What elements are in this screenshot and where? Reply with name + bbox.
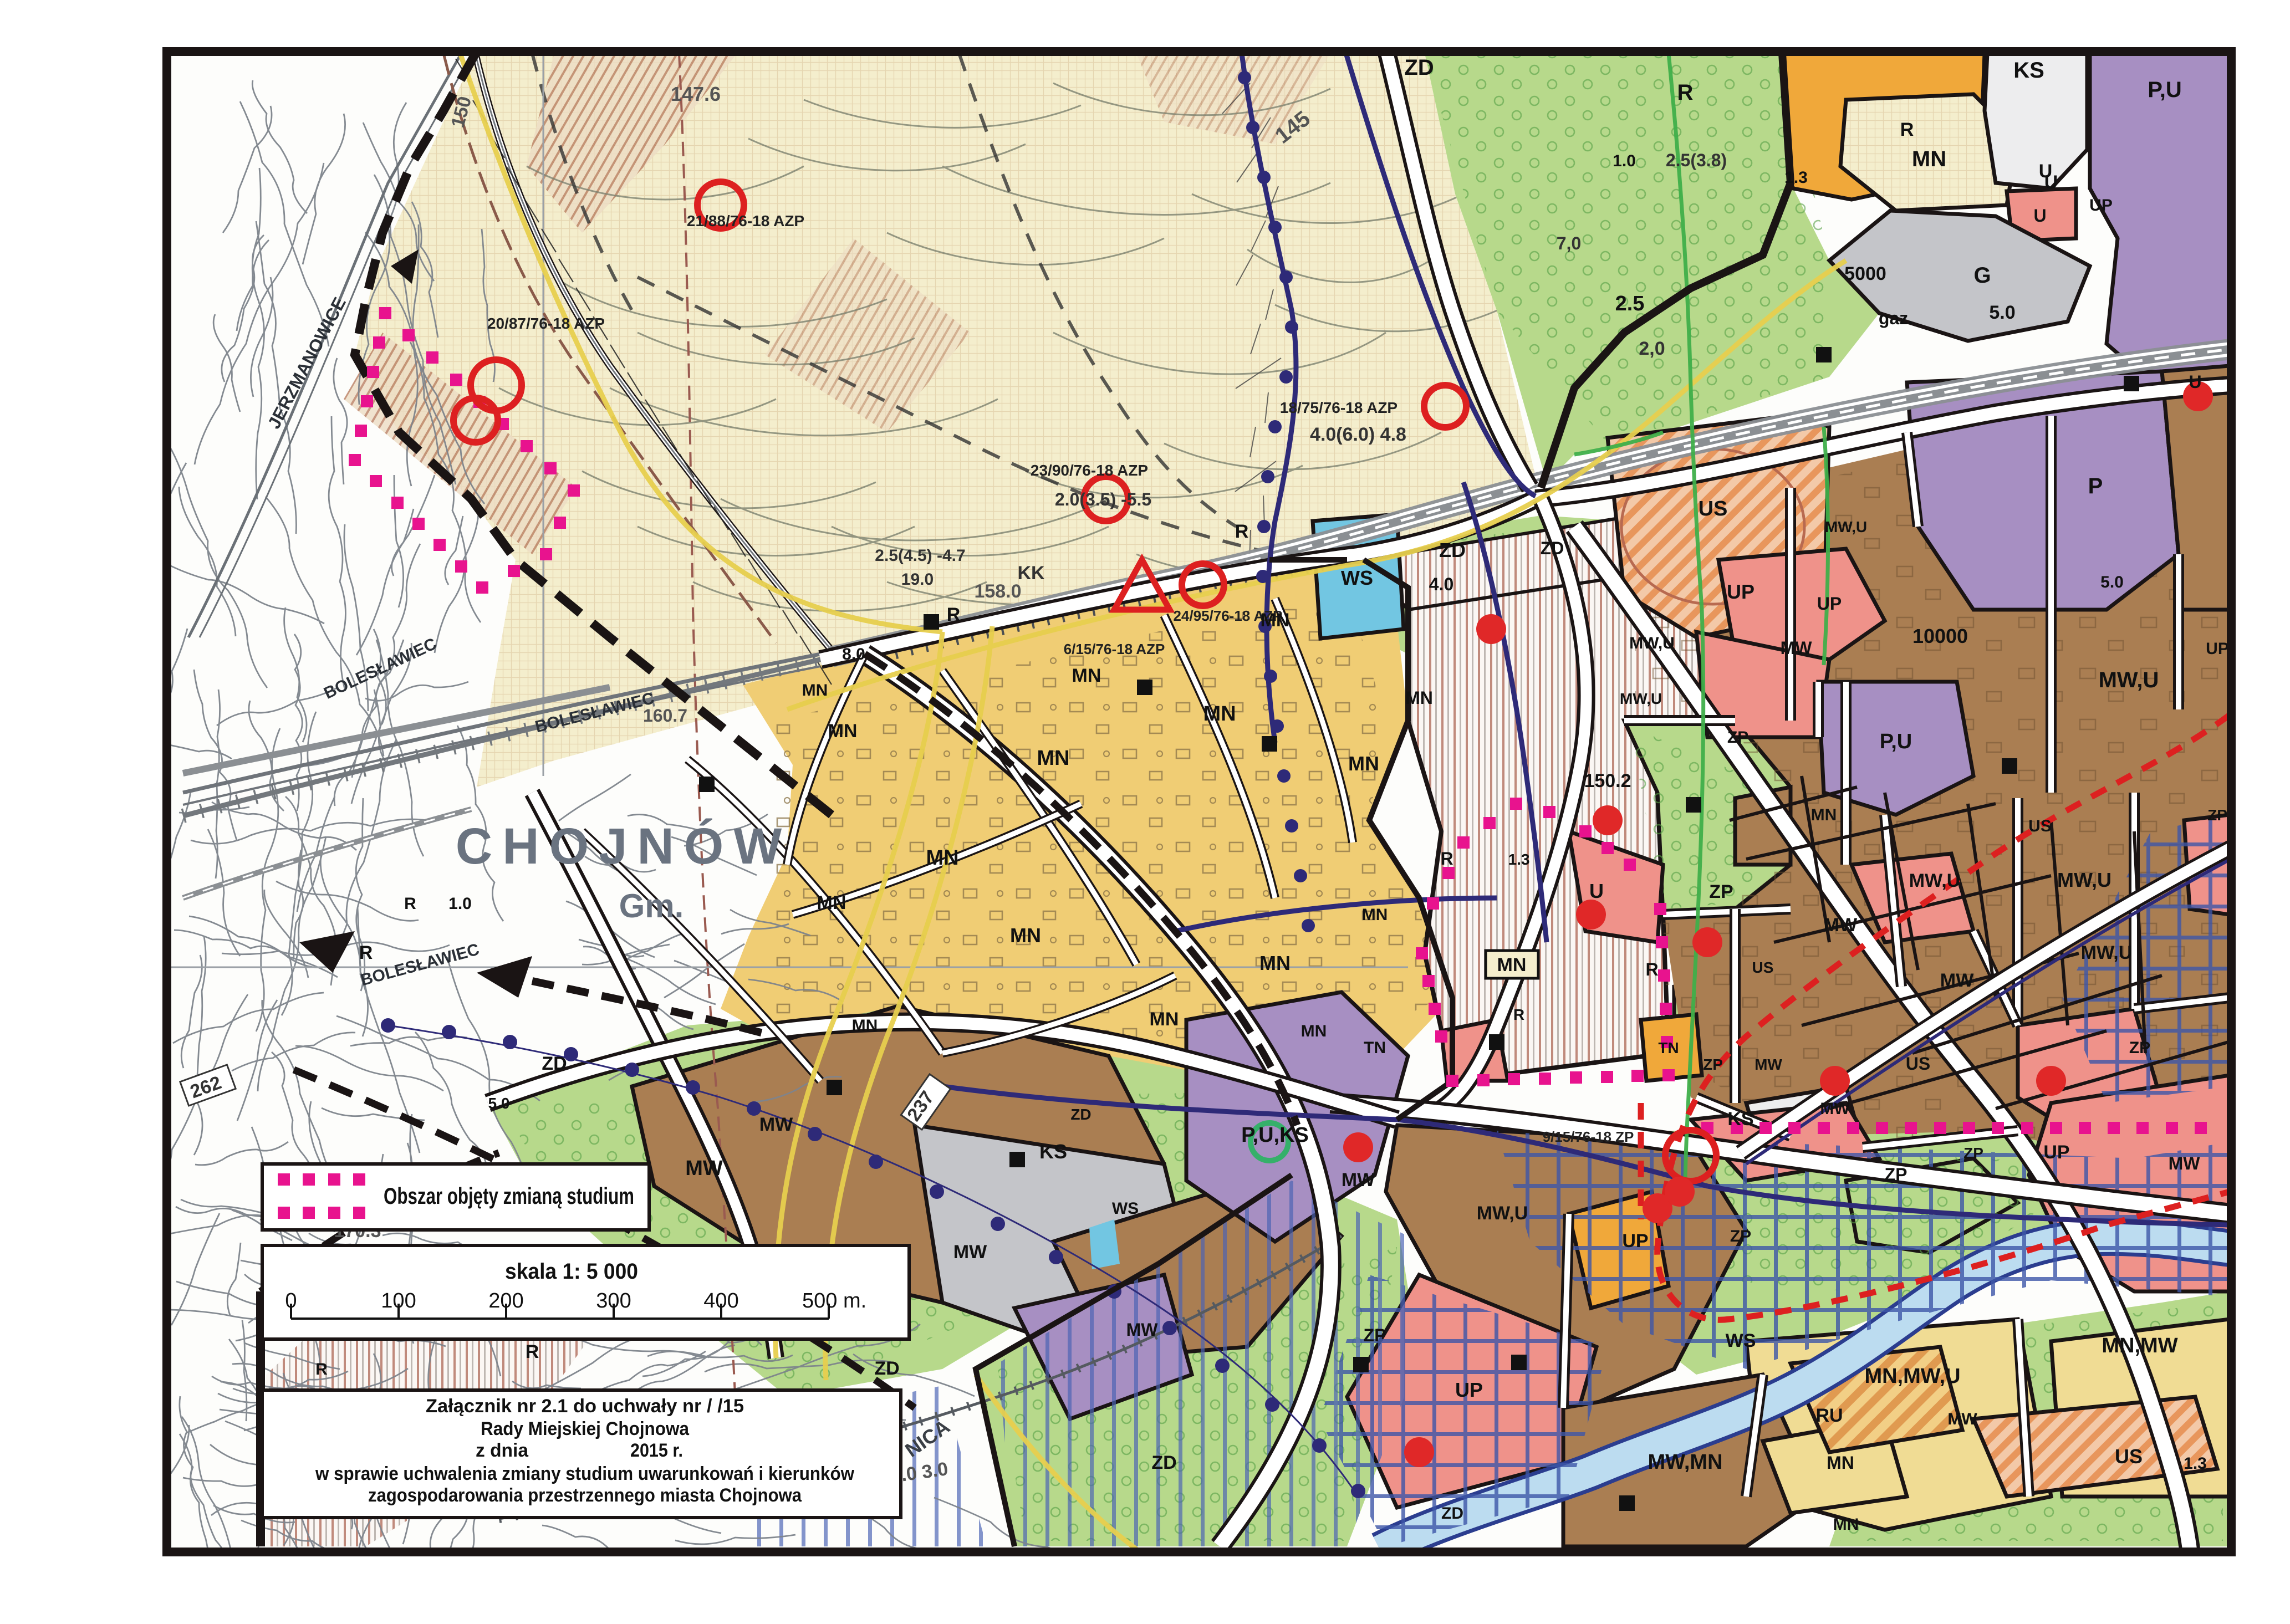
svg-text:500 m.: 500 m. (802, 1289, 866, 1313)
svg-text:R: R (404, 895, 416, 913)
svg-text:MN,MW: MN,MW (2102, 1334, 2177, 1357)
svg-text:4.0(6.0) 4.8: 4.0(6.0) 4.8 (1310, 424, 1406, 445)
svg-text:MN: MN (1827, 1453, 1854, 1473)
svg-text:R: R (1513, 1006, 1524, 1023)
svg-text:MN: MN (828, 721, 858, 742)
svg-text:MN: MN (1811, 806, 1837, 824)
svg-text:400: 400 (703, 1289, 738, 1313)
svg-text:MW: MW (1947, 1410, 1977, 1428)
svg-text:8.0: 8.0 (842, 645, 865, 663)
svg-text:MW,MN: MW,MN (1648, 1451, 1722, 1474)
svg-text:MW: MW (1781, 638, 1813, 658)
svg-text:MW,U: MW,U (1477, 1203, 1528, 1224)
svg-text:P,U,KS: P,U,KS (1241, 1123, 1309, 1147)
svg-text:UP: UP (1817, 594, 1842, 614)
svg-text:MN: MN (1405, 688, 1433, 708)
svg-text:w sprawie uchwalenia zmiany st: w sprawie uchwalenia zmiany studium uwar… (315, 1463, 854, 1484)
svg-text:P: P (2088, 474, 2103, 498)
svg-text:147.6: 147.6 (671, 83, 721, 105)
svg-text:gaz.: gaz. (1879, 308, 1913, 328)
svg-text:ZP: ZP (1885, 1165, 1908, 1184)
svg-text:KS: KS (1039, 1140, 1067, 1163)
svg-text:MW,U: MW,U (2099, 668, 2159, 692)
svg-text:2.0(3.5) -5.5: 2.0(3.5) -5.5 (1055, 489, 1151, 509)
svg-text:5.0: 5.0 (1989, 302, 2015, 323)
svg-text:MW,U: MW,U (1825, 518, 1867, 535)
svg-text:MW: MW (2169, 1153, 2201, 1173)
svg-text:R: R (1900, 119, 1914, 140)
svg-text:MN: MN (1259, 952, 1291, 974)
svg-text:MW: MW (1342, 1170, 1375, 1191)
svg-text:150.2: 150.2 (1584, 770, 1631, 791)
svg-text:MN: MN (1261, 610, 1290, 631)
svg-text:21/88/76-18 AZP: 21/88/76-18 AZP (687, 212, 804, 229)
svg-text:MN: MN (1203, 702, 1236, 726)
svg-text:R: R (1235, 521, 1249, 542)
svg-text:MN: MN (1010, 924, 1041, 947)
svg-text:US: US (2115, 1445, 2143, 1468)
svg-text:MN: MN (1150, 1009, 1179, 1030)
svg-text:MW,U: MW,U (1629, 634, 1675, 652)
svg-text:ZP: ZP (1703, 1056, 1723, 1073)
svg-text:ZD: ZD (1541, 538, 1564, 558)
svg-text:1.0: 1.0 (448, 895, 472, 913)
svg-text:US: US (1699, 497, 1728, 520)
svg-text:P,U: P,U (1880, 730, 1912, 753)
svg-text:5.0: 5.0 (488, 1095, 510, 1112)
svg-text:UP: UP (2206, 640, 2229, 658)
svg-text:skala 1: 5 000: skala 1: 5 000 (505, 1259, 638, 1284)
svg-text:7,0: 7,0 (1557, 233, 1581, 253)
svg-text:ZD: ZD (1404, 55, 1434, 80)
svg-text:U: U (1589, 880, 1604, 902)
svg-text:Załącznik nr 2.1 do uchwały nr: Załącznik nr 2.1 do uchwały nr / /15 (426, 1396, 744, 1417)
svg-text:US: US (1752, 959, 1774, 976)
svg-text:UP: UP (2089, 196, 2113, 215)
svg-text:MW: MW (1824, 915, 1858, 936)
svg-text:158.0: 158.0 (974, 581, 1021, 602)
svg-text:200: 200 (488, 1289, 523, 1313)
svg-text:ZD: ZD (874, 1358, 899, 1379)
svg-text:R: R (947, 604, 961, 625)
svg-text:ZP: ZP (1730, 1227, 1751, 1245)
svg-text:R: R (1440, 849, 1453, 869)
svg-text:R: R (1677, 80, 1694, 105)
svg-text:MW,U: MW,U (2057, 869, 2112, 891)
svg-text:MN: MN (926, 846, 958, 870)
svg-text:MW,U: MW,U (2081, 942, 2133, 963)
svg-text:KK: KK (1017, 563, 1045, 584)
svg-text:1.3: 1.3 (1784, 168, 1808, 187)
svg-text:19.0: 19.0 (901, 570, 934, 589)
svg-text:KS: KS (2013, 58, 2044, 83)
svg-text:100: 100 (381, 1289, 416, 1313)
svg-text:TN: TN (1658, 1039, 1679, 1056)
svg-text:5000: 5000 (1844, 263, 1886, 284)
svg-text:2,0: 2,0 (1639, 338, 1665, 359)
svg-text:WS: WS (1726, 1330, 1756, 1351)
svg-text:MN: MN (802, 681, 828, 699)
svg-text:MN: MN (1348, 752, 1379, 775)
svg-text:10000: 10000 (1912, 625, 1968, 647)
svg-text:MW,U: MW,U (1620, 690, 1662, 707)
svg-text:1.0: 1.0 (1613, 152, 1636, 170)
svg-text:ZD: ZD (1151, 1452, 1176, 1473)
svg-text:MW: MW (685, 1157, 723, 1180)
svg-text:UP: UP (1622, 1230, 1648, 1252)
svg-text:MN,MW,U: MN,MW,U (1864, 1365, 1960, 1388)
svg-text:6/15/76-18 AZP: 6/15/76-18 AZP (1064, 641, 1165, 657)
svg-text:300: 300 (596, 1289, 631, 1313)
svg-text:RU: RU (1815, 1405, 1843, 1426)
svg-text:R: R (526, 1341, 539, 1362)
svg-text:R: R (315, 1360, 328, 1378)
svg-text:9/15/76-18 ZP: 9/15/76-18 ZP (1543, 1128, 1634, 1145)
svg-text:P,U: P,U (2148, 78, 2182, 102)
svg-text:U: U (2033, 206, 2046, 226)
svg-text:ZP: ZP (1963, 1145, 1983, 1162)
svg-text:MW,U: MW,U (1909, 870, 1961, 891)
svg-text:MW: MW (1755, 1056, 1782, 1073)
svg-text:Gm.: Gm. (619, 887, 684, 925)
svg-text:MW: MW (759, 1114, 793, 1135)
svg-text:Obszar objęty zmianą studium: Obszar objęty zmianą studium (384, 1183, 634, 1209)
svg-text:MN: MN (1301, 1022, 1327, 1040)
svg-text:2.5(4.5) -4.7: 2.5(4.5) -4.7 (875, 547, 965, 565)
svg-text:MW: MW (1820, 1100, 1850, 1118)
svg-text:18/75/76-18 AZP: 18/75/76-18 AZP (1280, 399, 1398, 416)
svg-text:MN: MN (817, 892, 846, 913)
svg-text:MN: MN (1037, 747, 1069, 770)
svg-text:TN: TN (1364, 1039, 1386, 1057)
svg-text:UP: UP (1455, 1378, 1483, 1401)
svg-text:zagospodarowania przestrzenneg: zagospodarowania przestrzennego miasta C… (368, 1485, 802, 1506)
svg-text:160.7: 160.7 (643, 706, 687, 726)
svg-text:5.0: 5.0 (2100, 573, 2124, 591)
svg-text:UP: UP (1727, 580, 1755, 603)
svg-text:KS: KS (1727, 1109, 1753, 1130)
svg-text:R: R (359, 942, 373, 963)
svg-text:Rady Miejskiej Chojnowa: Rady Miejskiej Chojnowa (481, 1418, 690, 1439)
svg-text:2015 r.: 2015 r. (630, 1440, 683, 1461)
svg-text:ZP: ZP (1727, 728, 1748, 747)
svg-text:UP: UP (2043, 1142, 2069, 1163)
svg-text:ZP: ZP (2129, 1039, 2150, 1057)
svg-text:ZP: ZP (1364, 1325, 1386, 1345)
svg-text:ZP: ZP (2207, 806, 2227, 824)
svg-text:MN: MN (1833, 1515, 1859, 1534)
svg-text:MN: MN (852, 1017, 878, 1035)
svg-text:ZD: ZD (1439, 539, 1466, 561)
svg-text:R: R (1645, 959, 1658, 979)
svg-text:MN: MN (1072, 665, 1101, 686)
svg-text:U: U (2189, 372, 2201, 392)
svg-text:WS: WS (1341, 566, 1373, 589)
svg-text:US: US (2028, 817, 2052, 835)
svg-text:G: G (1973, 263, 1991, 288)
svg-text:ZD: ZD (542, 1053, 567, 1074)
svg-text:MN: MN (1362, 906, 1388, 924)
svg-text:1.3: 1.3 (2184, 1454, 2207, 1473)
svg-text:20/87/76-18 AZP: 20/87/76-18 AZP (487, 315, 605, 332)
svg-text:MN: MN (1497, 954, 1527, 976)
svg-text:23/90/76-18 AZP: 23/90/76-18 AZP (1031, 462, 1148, 479)
svg-text:1.3: 1.3 (1508, 851, 1530, 868)
svg-text:CHOJNÓW: CHOJNÓW (456, 818, 792, 875)
svg-text:ZD: ZD (1441, 1504, 1463, 1523)
svg-text:0: 0 (285, 1289, 297, 1313)
svg-text:US: US (1906, 1054, 1930, 1074)
svg-text:ZD: ZD (1070, 1106, 1091, 1123)
svg-text:MW: MW (1940, 970, 1974, 991)
svg-text:MN: MN (1912, 147, 1946, 171)
svg-text:MW: MW (953, 1242, 987, 1263)
svg-text:MW: MW (1126, 1320, 1159, 1340)
svg-text:2.5(3.8): 2.5(3.8) (1666, 150, 1727, 170)
svg-text:2.5: 2.5 (1615, 292, 1645, 315)
svg-text:WS: WS (1112, 1199, 1139, 1218)
svg-text:U: U (2044, 172, 2058, 193)
svg-text:4.0: 4.0 (1429, 574, 1453, 594)
svg-text:z dnia: z dnia (476, 1440, 529, 1461)
svg-text:ZP: ZP (1709, 881, 1733, 902)
